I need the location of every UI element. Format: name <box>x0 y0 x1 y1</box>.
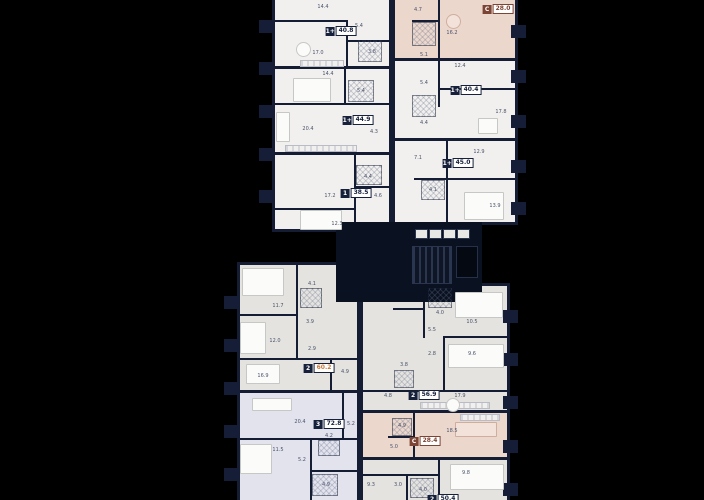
unit-badge-28-4[interactable]: С 28.4 <box>410 436 441 446</box>
unit-badge-28-0[interactable]: С 28.0 <box>483 4 514 14</box>
ventilation-shaft <box>443 229 456 239</box>
unit-area-value: 45.0 <box>453 158 474 168</box>
unit-type-label: 1+ <box>443 159 452 168</box>
unit-region-1-38-5[interactable] <box>272 153 392 232</box>
unit-badge-72-8[interactable]: 3 72.8 <box>314 419 345 429</box>
unit-type-label: С <box>483 5 492 14</box>
unit-badge-38-5[interactable]: 1 38.5 <box>341 188 372 198</box>
unit-area-value: 28.4 <box>420 436 441 446</box>
unit-type-label: 1+ <box>326 27 335 36</box>
unit-type-label: С <box>410 437 419 446</box>
unit-type-label: 1+ <box>451 86 460 95</box>
staircase <box>412 246 452 284</box>
floor-plan: 14.4 5.4 17.0 3.8 14.4 5.4 20.4 4.3 4.4 … <box>0 0 704 500</box>
unit-area-value: 72.8 <box>324 419 345 429</box>
unit-area-value: 40.4 <box>461 85 482 95</box>
unit-type-label: 1 <box>341 189 350 198</box>
unit-type-label: 1+ <box>343 116 352 125</box>
unit-type-label: 3 <box>314 420 323 429</box>
unit-region-3-72-8[interactable] <box>237 391 360 500</box>
unit-region-studio-28-4[interactable] <box>360 411 510 458</box>
unit-area-value: 50.4 <box>438 494 459 500</box>
unit-area-value: 28.0 <box>493 4 514 14</box>
unit-area-value: 56.9 <box>419 390 440 400</box>
unit-badge-56-9[interactable]: 2 56.9 <box>409 390 440 400</box>
unit-badge-44-9[interactable]: 1+ 44.9 <box>343 115 374 125</box>
unit-badge-50-4[interactable]: 2 50.4 <box>428 494 459 500</box>
unit-badge-45-0[interactable]: 1+ 45.0 <box>443 158 474 168</box>
unit-area-value: 40.8 <box>336 26 357 36</box>
unit-region-1plus-44-9[interactable] <box>272 67 392 153</box>
unit-type-label: 2 <box>409 391 418 400</box>
elevator-shaft <box>456 246 478 278</box>
unit-region-2-60-2[interactable] <box>237 262 360 391</box>
unit-region-1plus-40-4[interactable] <box>392 59 518 139</box>
ventilation-shaft <box>457 229 470 239</box>
unit-badge-40-4[interactable]: 1+ 40.4 <box>451 85 482 95</box>
unit-area-value: 38.5 <box>351 188 372 198</box>
unit-area-value: 44.9 <box>353 115 374 125</box>
unit-type-label: 2 <box>304 364 313 373</box>
unit-badge-40-8[interactable]: 1+ 40.8 <box>326 26 357 36</box>
unit-badge-60-2[interactable]: 2 60.2 <box>304 363 335 373</box>
unit-area-value: 60.2 <box>314 363 335 373</box>
unit-region-1plus-45-0[interactable] <box>392 139 518 225</box>
ventilation-shaft <box>415 229 428 239</box>
ventilation-shaft <box>429 229 442 239</box>
unit-type-label: 2 <box>428 495 437 500</box>
